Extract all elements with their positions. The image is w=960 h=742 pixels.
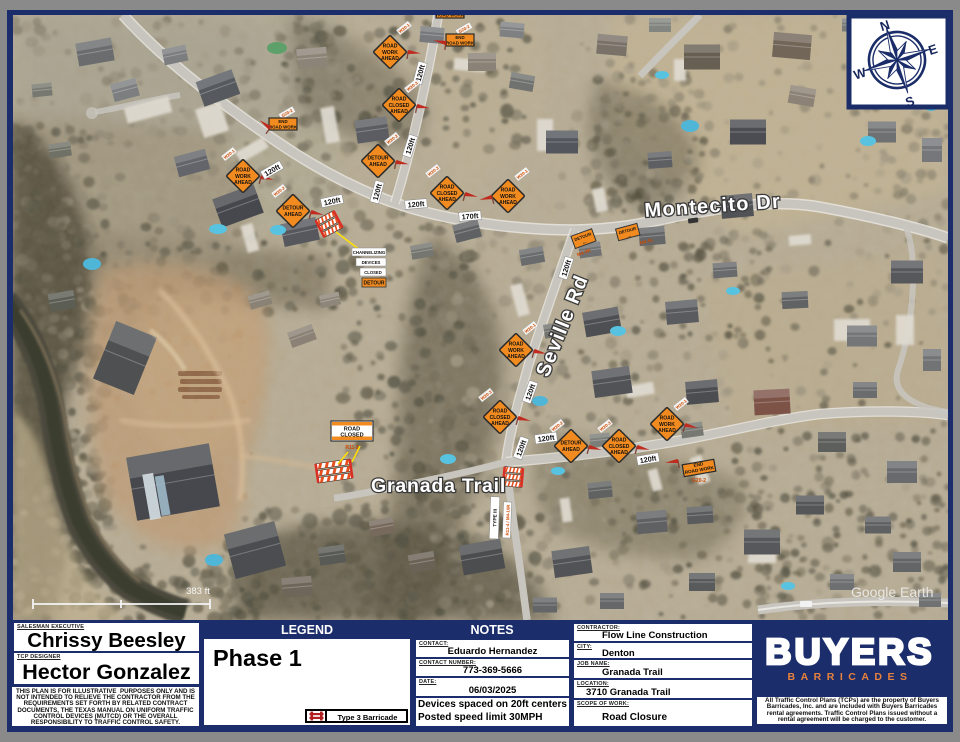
svg-text:ROAD: ROAD xyxy=(383,44,398,50)
svg-text:Montecito Dr: Montecito Dr xyxy=(644,191,782,222)
svg-text:ROAD: ROAD xyxy=(612,438,627,444)
svg-text:CLOSED: CLOSED xyxy=(609,444,630,450)
svg-text:120ft: 120ft xyxy=(323,195,342,207)
svg-text:120ft: 120ft xyxy=(403,136,417,155)
svg-text:Granada Trail: Granada Trail xyxy=(371,475,506,497)
svg-text:CLOSED: CLOSED xyxy=(389,103,410,109)
svg-text:Google Earth: Google Earth xyxy=(851,584,934,600)
svg-text:ROAD WORK: ROAD WORK xyxy=(436,15,465,18)
svg-text:CLOSED: CLOSED xyxy=(364,270,381,275)
svg-text:CHANNELIZING: CHANNELIZING xyxy=(353,250,386,255)
svg-text:CLOSED: CLOSED xyxy=(437,191,458,197)
svg-text:ROAD: ROAD xyxy=(509,342,524,348)
svg-text:AHEAD: AHEAD xyxy=(499,200,517,206)
svg-text:120ft: 120ft xyxy=(537,433,555,444)
svg-text:DETOUR: DETOUR xyxy=(363,281,384,287)
svg-text:AHEAD: AHEAD xyxy=(438,197,456,203)
svg-text:TYPE III: TYPE III xyxy=(492,508,499,527)
svg-text:Seville Rd: Seville Rd xyxy=(532,272,593,380)
svg-text:ROAD WORK: ROAD WORK xyxy=(446,41,475,46)
svg-text:CLOSED: CLOSED xyxy=(340,433,363,439)
svg-text:G20-2: G20-2 xyxy=(692,478,706,484)
svg-text:ROAD: ROAD xyxy=(392,97,407,103)
svg-text:AHEAD: AHEAD xyxy=(390,109,408,115)
svg-text:WORK: WORK xyxy=(508,348,524,354)
svg-text:AHEAD: AHEAD xyxy=(234,180,252,186)
svg-text:ROAD WORK: ROAD WORK xyxy=(269,125,298,130)
svg-text:AHEAD: AHEAD xyxy=(610,450,628,456)
svg-text:AHEAD: AHEAD xyxy=(658,428,676,434)
svg-text:WORK: WORK xyxy=(382,50,398,56)
svg-text:ROAD: ROAD xyxy=(660,416,675,422)
svg-text:END: END xyxy=(278,119,287,124)
svg-text:AHEAD: AHEAD xyxy=(491,421,509,427)
svg-text:DEVICES: DEVICES xyxy=(362,260,381,265)
svg-text:AHEAD: AHEAD xyxy=(507,354,525,360)
svg-text:AHEAD: AHEAD xyxy=(284,212,302,218)
svg-text:END: END xyxy=(455,35,464,40)
svg-text:R11-2: R11-2 xyxy=(345,445,359,451)
svg-text:ROAD: ROAD xyxy=(440,185,455,191)
svg-text:WORK: WORK xyxy=(659,422,675,428)
svg-text:ROAD: ROAD xyxy=(493,409,508,415)
svg-text:M4-9L: M4-9L xyxy=(639,237,654,246)
svg-text:DETOUR: DETOUR xyxy=(367,156,388,162)
svg-text:170ft: 170ft xyxy=(461,211,479,221)
svg-text:120ft: 120ft xyxy=(371,182,384,201)
svg-text:120ft: 120ft xyxy=(639,453,658,465)
svg-text:ROAD: ROAD xyxy=(501,188,516,194)
svg-text:120ft: 120ft xyxy=(407,199,425,209)
svg-text:DETOUR: DETOUR xyxy=(282,206,303,212)
svg-text:M4-9R: M4-9R xyxy=(576,248,592,259)
svg-text:AHEAD: AHEAD xyxy=(369,162,387,168)
svg-text:ROAD: ROAD xyxy=(236,168,251,174)
svg-text:AHEAD: AHEAD xyxy=(381,56,399,62)
svg-text:WORK: WORK xyxy=(235,174,251,180)
svg-text:BUYERS: BUYERS xyxy=(765,631,934,672)
svg-text:CLOSED: CLOSED xyxy=(490,415,511,421)
svg-text:BARRICADES: BARRICADES xyxy=(787,671,912,683)
svg-text:WORK: WORK xyxy=(500,194,516,200)
svg-text:DETOUR: DETOUR xyxy=(560,441,581,447)
svg-text:383 ft: 383 ft xyxy=(186,586,210,597)
svg-text:AHEAD: AHEAD xyxy=(562,447,580,453)
